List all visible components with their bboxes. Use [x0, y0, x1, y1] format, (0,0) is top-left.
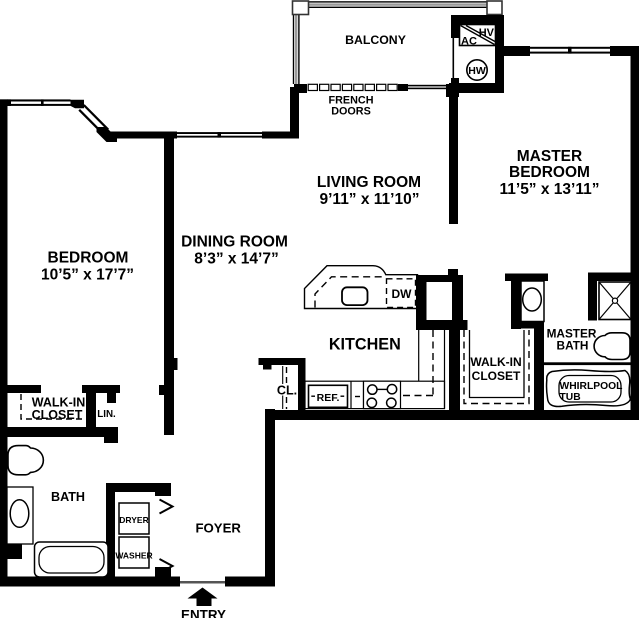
svg-text:BALCONY: BALCONY: [345, 33, 406, 47]
svg-text:HV: HV: [479, 27, 495, 39]
svg-text:FOYER: FOYER: [195, 520, 241, 535]
svg-text:BATH: BATH: [557, 339, 589, 353]
svg-text:DW: DW: [392, 287, 413, 301]
svg-text:LIN.: LIN.: [97, 409, 116, 420]
svg-text:9’11” x 11’10”: 9’11” x 11’10”: [320, 191, 420, 208]
svg-text:11’5” x 13’11”: 11’5” x 13’11”: [500, 181, 600, 198]
svg-text:WHIRLPOOL: WHIRLPOOL: [560, 381, 623, 392]
svg-text:AC: AC: [461, 35, 477, 47]
svg-text:BEDROOM: BEDROOM: [509, 164, 590, 181]
svg-text:WASHER: WASHER: [115, 551, 152, 561]
svg-text:DOORS: DOORS: [331, 105, 371, 117]
svg-text:10’5” x 17’7”: 10’5” x 17’7”: [41, 267, 134, 284]
svg-text:ENTRY: ENTRY: [181, 608, 226, 618]
svg-text:DINING ROOM: DINING ROOM: [181, 234, 288, 251]
svg-text:TUB: TUB: [560, 392, 581, 403]
svg-text:REF.: REF.: [317, 392, 340, 404]
svg-text:8’3” x 14’7”: 8’3” x 14’7”: [194, 251, 278, 268]
svg-text:KITCHEN: KITCHEN: [329, 335, 401, 353]
svg-text:LIVING ROOM: LIVING ROOM: [317, 174, 421, 191]
svg-text:HW: HW: [468, 65, 486, 77]
svg-text:CLOSET: CLOSET: [472, 369, 521, 383]
svg-text:WALK-IN: WALK-IN: [470, 355, 521, 369]
svg-text:CLOSET: CLOSET: [32, 408, 83, 422]
svg-text:CL.: CL.: [277, 383, 297, 397]
svg-text:DRYER: DRYER: [119, 515, 148, 525]
svg-text:MASTER: MASTER: [517, 148, 582, 165]
svg-text:BEDROOM: BEDROOM: [48, 249, 129, 266]
svg-text:BATH: BATH: [51, 490, 85, 504]
